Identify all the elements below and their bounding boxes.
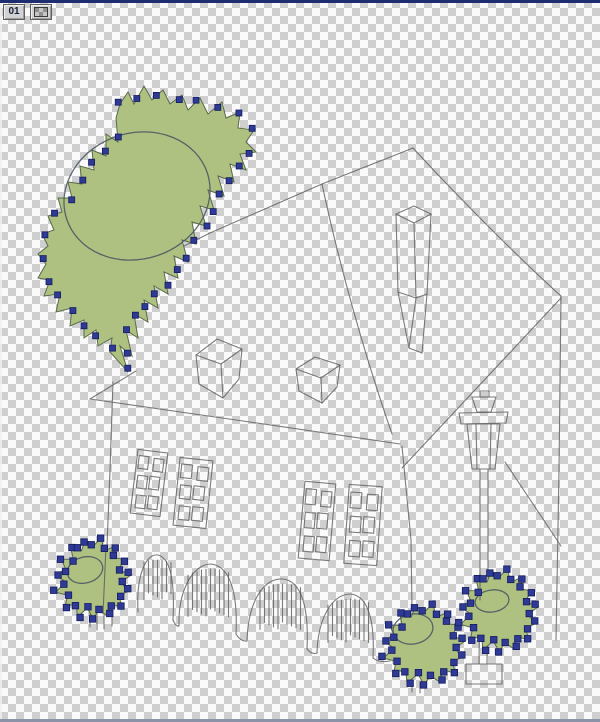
node-handle[interactable]	[394, 658, 401, 665]
node-handle[interactable]	[116, 567, 123, 574]
node-handle[interactable]	[470, 624, 477, 631]
node-handle[interactable]	[204, 223, 210, 229]
node-handle[interactable]	[459, 635, 466, 642]
node-handle[interactable]	[74, 545, 81, 552]
node-handle[interactable]	[40, 256, 46, 262]
node-handle[interactable]	[93, 333, 99, 339]
node-handle[interactable]	[524, 626, 531, 633]
node-handle[interactable]	[482, 647, 489, 654]
node-handle[interactable]	[62, 568, 69, 575]
node-handle[interactable]	[63, 604, 69, 611]
node-handle[interactable]	[443, 618, 450, 625]
node-handle[interactable]	[459, 652, 466, 659]
node-handle[interactable]	[513, 643, 520, 650]
node-handle[interactable]	[125, 365, 131, 371]
node-handle[interactable]	[462, 588, 469, 595]
node-handle[interactable]	[450, 633, 457, 640]
node-handle[interactable]	[404, 611, 411, 618]
node-handle[interactable]	[444, 611, 451, 618]
node-handle[interactable]	[246, 150, 252, 156]
node-handle[interactable]	[119, 578, 126, 585]
node-handle[interactable]	[55, 292, 61, 298]
window-left-border	[0, 0, 2, 722]
node-handle[interactable]	[451, 659, 458, 666]
node-handle[interactable]	[515, 636, 522, 643]
node-handle[interactable]	[81, 323, 87, 329]
node-handle[interactable]	[70, 308, 76, 314]
node-handle[interactable]	[391, 634, 398, 641]
node-handle[interactable]	[55, 572, 62, 579]
node-handle[interactable]	[125, 585, 132, 592]
node-handle[interactable]	[69, 197, 75, 203]
node-handle[interactable]	[508, 576, 515, 583]
node-handle[interactable]	[216, 191, 222, 197]
node-handle[interactable]	[524, 636, 531, 643]
node-handle[interactable]	[77, 614, 84, 621]
node-handle[interactable]	[419, 608, 426, 615]
node-handle[interactable]	[532, 601, 539, 608]
image-canvas[interactable]: 01	[0, 0, 600, 722]
node-handle[interactable]	[415, 669, 422, 676]
node-handle[interactable]	[517, 584, 524, 591]
node-handle[interactable]	[124, 327, 130, 333]
node-handle[interactable]	[466, 613, 473, 620]
node-handle[interactable]	[453, 644, 460, 651]
frame-indicator: 01	[3, 4, 52, 20]
node-handle[interactable]	[523, 598, 530, 605]
node-handle[interactable]	[153, 92, 159, 98]
node-handle[interactable]	[85, 604, 92, 611]
node-handle[interactable]	[475, 589, 482, 596]
node-handle[interactable]	[115, 134, 121, 140]
node-handle[interactable]	[236, 163, 242, 169]
node-handle[interactable]	[117, 593, 124, 600]
node-handle[interactable]	[46, 279, 52, 285]
node-handle[interactable]	[532, 618, 539, 625]
node-handle[interactable]	[460, 604, 467, 611]
node-handle[interactable]	[480, 576, 487, 583]
node-handle[interactable]	[174, 267, 180, 273]
node-handle[interactable]	[420, 682, 427, 689]
node-handle[interactable]	[115, 99, 121, 105]
node-handle[interactable]	[80, 177, 86, 183]
node-handle[interactable]	[385, 622, 392, 629]
node-handle[interactable]	[110, 552, 117, 559]
node-handle[interactable]	[519, 576, 526, 583]
node-handle[interactable]	[226, 178, 232, 184]
node-handle[interactable]	[97, 535, 104, 542]
node-handle[interactable]	[215, 104, 221, 110]
node-handle[interactable]	[96, 606, 103, 613]
node-handle[interactable]	[439, 677, 446, 684]
node-handle[interactable]	[398, 610, 405, 617]
node-handle[interactable]	[89, 159, 95, 165]
node-handle[interactable]	[456, 619, 463, 626]
node-handle[interactable]	[389, 647, 396, 654]
node-handle[interactable]	[478, 635, 485, 642]
node-handle[interactable]	[210, 209, 216, 215]
node-handle[interactable]	[504, 566, 511, 573]
node-handle[interactable]	[491, 637, 498, 644]
node-handle[interactable]	[165, 282, 171, 288]
node-handle[interactable]	[249, 125, 255, 131]
node-handle[interactable]	[526, 610, 533, 617]
node-handle[interactable]	[379, 653, 386, 660]
node-handle[interactable]	[469, 637, 476, 644]
transparency-icon	[34, 7, 48, 17]
node-handle[interactable]	[125, 569, 131, 576]
node-handle[interactable]	[502, 639, 509, 646]
node-handle[interactable]	[433, 611, 440, 618]
node-handle[interactable]	[487, 570, 494, 577]
node-handle[interactable]	[42, 232, 48, 238]
node-handle[interactable]	[57, 556, 64, 563]
node-handle[interactable]	[52, 210, 58, 216]
node-handle[interactable]	[89, 616, 96, 623]
node-handle[interactable]	[108, 603, 115, 610]
frame-number-badge[interactable]: 01	[3, 4, 25, 20]
node-handle[interactable]	[528, 590, 535, 597]
node-handle[interactable]	[107, 610, 114, 617]
node-handle[interactable]	[236, 110, 242, 116]
node-handle[interactable]	[110, 345, 116, 351]
window-sketch	[344, 484, 382, 565]
node-handle[interactable]	[191, 237, 197, 243]
node-handle[interactable]	[399, 624, 406, 631]
node-handle[interactable]	[70, 558, 77, 565]
node-handle[interactable]	[124, 350, 130, 356]
node-handle[interactable]	[134, 96, 140, 102]
node-handle[interactable]	[51, 587, 58, 594]
node-handle[interactable]	[393, 670, 400, 677]
node-handle[interactable]	[407, 680, 414, 687]
node-handle[interactable]	[88, 542, 95, 549]
node-handle[interactable]	[441, 669, 448, 676]
artwork-layer[interactable]	[0, 0, 600, 722]
node-handle[interactable]	[118, 603, 125, 610]
node-handle[interactable]	[101, 545, 108, 552]
node-handle[interactable]	[65, 592, 72, 599]
node-handle[interactable]	[411, 605, 418, 612]
node-handle[interactable]	[72, 602, 79, 609]
node-handle[interactable]	[112, 545, 119, 552]
window-sketch	[130, 449, 168, 516]
node-handle[interactable]	[402, 669, 409, 676]
node-handle[interactable]	[183, 255, 189, 261]
node-handle[interactable]	[176, 97, 182, 103]
node-handle[interactable]	[81, 539, 88, 546]
window-top-border	[0, 0, 600, 3]
node-handle[interactable]	[451, 669, 458, 676]
node-handle[interactable]	[142, 304, 148, 310]
node-handle[interactable]	[383, 638, 390, 645]
node-handle[interactable]	[495, 649, 502, 656]
node-handle[interactable]	[132, 312, 138, 318]
node-handle[interactable]	[427, 672, 434, 679]
node-handle[interactable]	[121, 558, 128, 565]
node-handle[interactable]	[193, 97, 199, 103]
window-sketch	[298, 481, 336, 560]
window-sketch	[173, 457, 213, 528]
node-handle[interactable]	[102, 148, 108, 154]
node-handle[interactable]	[151, 291, 157, 297]
node-handle[interactable]	[429, 601, 436, 608]
node-handle[interactable]	[467, 600, 474, 607]
frame-icon-badge[interactable]	[30, 4, 52, 20]
node-handle[interactable]	[61, 581, 68, 588]
node-handle[interactable]	[494, 573, 501, 580]
